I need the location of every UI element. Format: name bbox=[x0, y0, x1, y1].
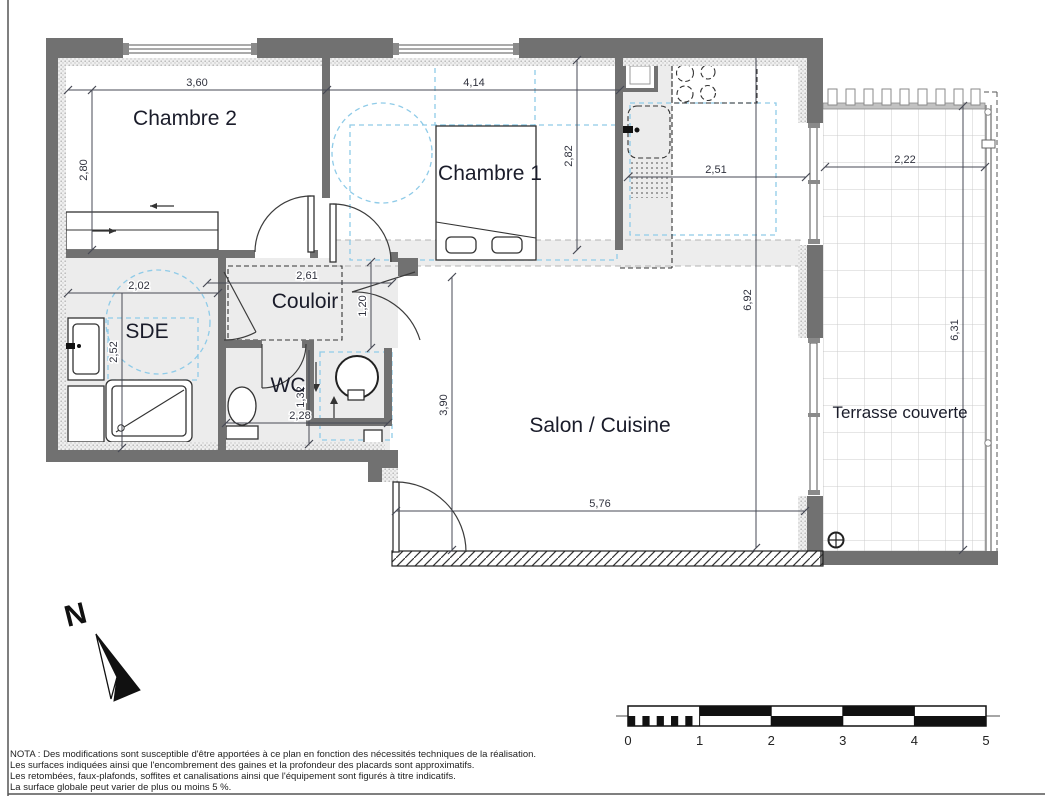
room-label-chambre1: Chambre 1 bbox=[438, 162, 542, 185]
dim-couloir-width: 2,61 bbox=[296, 270, 317, 282]
scale-tick-0: 0 bbox=[624, 733, 631, 748]
awning-slats-icon bbox=[828, 89, 980, 105]
window-salon-upper bbox=[805, 123, 823, 245]
dim-terrasse-width: 2,22 bbox=[894, 154, 915, 166]
dim-terrasse-depth: 6,31 bbox=[949, 319, 961, 340]
dim-sde-width: 2,02 bbox=[128, 280, 149, 292]
terrace-bottom-wall bbox=[820, 551, 998, 565]
wall-niche-right bbox=[384, 348, 392, 418]
wall-chambre-divider bbox=[322, 58, 330, 198]
room-label-chambre2: Chambre 2 bbox=[133, 107, 237, 130]
window-chambre2 bbox=[123, 38, 257, 58]
dim-chambre2-width: 3,60 bbox=[186, 77, 207, 89]
scale-tick-4: 4 bbox=[911, 733, 918, 748]
room-label-sde: SDE bbox=[125, 320, 168, 343]
wall-niche-bottom bbox=[314, 418, 392, 426]
nota-text: NOTA : Des modifications sont susceptibl… bbox=[10, 749, 536, 793]
wall-wc-top bbox=[226, 340, 262, 348]
floor-plan-drawing: 3,60 2,80 4,14 2,82 2,51 2,22 6,31 6,92 … bbox=[0, 0, 1047, 800]
scale-tick-3: 3 bbox=[839, 733, 846, 748]
chambre1-window-zone bbox=[435, 62, 535, 125]
drain-icon bbox=[828, 532, 844, 548]
bed-icon bbox=[436, 126, 536, 260]
nota-line-3: Les retombées, faux-plafonds, soffites e… bbox=[10, 771, 456, 782]
sde-cabinet bbox=[68, 386, 104, 442]
window-chambre1 bbox=[393, 38, 519, 58]
wall-chambre1-kitchen bbox=[615, 58, 623, 250]
closet-icon bbox=[66, 203, 218, 250]
wall-right-middle bbox=[807, 245, 823, 338]
wall-sde-couloir bbox=[218, 258, 226, 452]
wc-niche-box bbox=[364, 430, 382, 444]
dim-chambre1-depth: 2,82 bbox=[563, 145, 575, 166]
scale-tick-5: 5 bbox=[982, 733, 989, 748]
dim-sde-depth: 2,52 bbox=[108, 341, 120, 362]
dim-chambre2-depth: 2,80 bbox=[78, 159, 90, 180]
door-chambre2 bbox=[255, 196, 314, 252]
wall-left bbox=[46, 38, 58, 462]
dim-salon-width: 5,76 bbox=[589, 498, 610, 510]
door-entry bbox=[393, 482, 466, 552]
chambre1-clearance-circle bbox=[332, 103, 432, 203]
window-salon-bay bbox=[805, 338, 823, 496]
room-label-couloir: Couloir bbox=[272, 290, 339, 313]
wall-couloir-top bbox=[66, 250, 255, 258]
room-label-salon-cuisine: Salon / Cuisine bbox=[529, 414, 670, 437]
north-arrow: N bbox=[61, 597, 140, 701]
scale-tick-1: 1 bbox=[696, 733, 703, 748]
wall-couloir-corner bbox=[398, 258, 418, 276]
cooktop-icon bbox=[677, 65, 716, 103]
dim-wc-width: 2,28 bbox=[289, 410, 310, 422]
dim-couloir-depth: 1,20 bbox=[357, 295, 369, 316]
toilet-icon bbox=[226, 387, 258, 439]
room-label-terrasse: Terrasse couverte bbox=[832, 403, 967, 422]
wall-bottom-hatched bbox=[392, 551, 823, 566]
nota-line-1: NOTA : Des modifications sont susceptibl… bbox=[10, 749, 536, 760]
scale-tick-2: 2 bbox=[768, 733, 775, 748]
dim-cuisine-width: 2,51 bbox=[705, 164, 726, 176]
dim-salon-depth-right: 6,92 bbox=[742, 289, 754, 310]
floor-plan-page: 3,60 2,80 4,14 2,82 2,51 2,22 6,31 6,92 … bbox=[0, 0, 1047, 800]
scale-bar: 0 1 2 3 4 5 bbox=[616, 706, 1000, 748]
wall-right-upper bbox=[807, 58, 823, 123]
shower-icon bbox=[106, 380, 192, 442]
dim-chambre1-width: 4,14 bbox=[463, 77, 484, 89]
north-label: N bbox=[61, 597, 90, 634]
room-label-wc: WC bbox=[271, 374, 306, 397]
wall-right-lower bbox=[807, 496, 823, 551]
dim-salon-depth-left: 3,90 bbox=[438, 394, 450, 415]
nota-line-2: Les surfaces indiquées ainsi que l'encom… bbox=[10, 760, 474, 771]
vanity-sink-icon bbox=[64, 318, 104, 380]
nota-line-4: La surface globale peut varier de plus o… bbox=[10, 782, 231, 793]
